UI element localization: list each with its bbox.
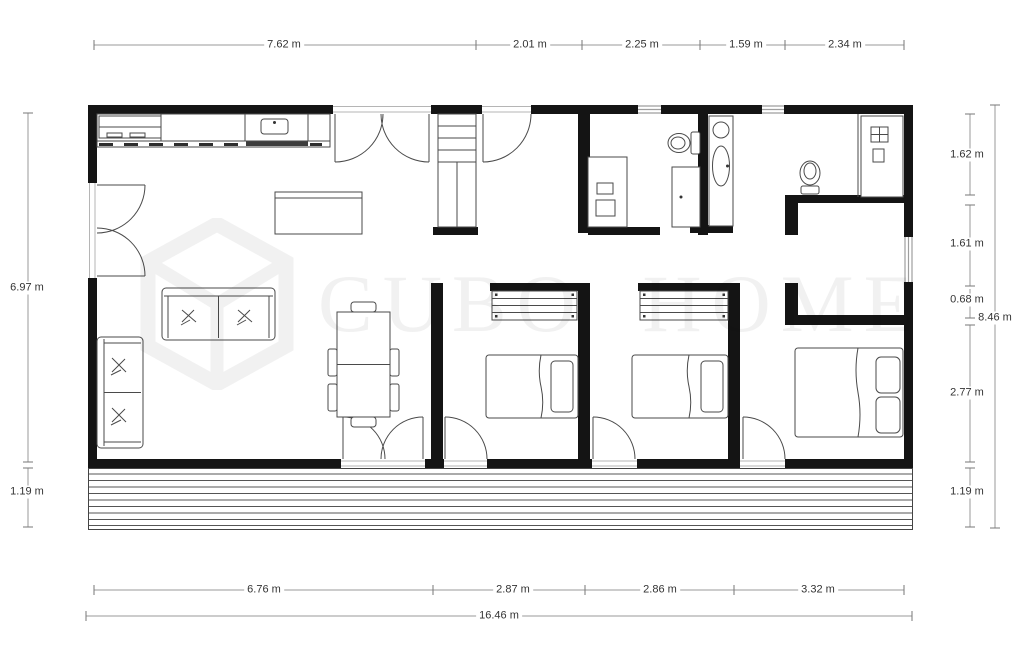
dim-bottom-2: 2.87 m — [493, 584, 533, 597]
dim-right-5: 1.19 m — [947, 486, 987, 499]
dim-right-3: 0.68 m — [947, 294, 987, 307]
dim-bottom-1: 6.76 m — [244, 584, 284, 597]
kitchen-island — [275, 192, 362, 234]
dim-total-width: 16.46 m — [476, 610, 522, 623]
dim-top-3: 2.25 m — [622, 39, 662, 52]
sofa-large — [162, 288, 275, 340]
dim-bottom-3: 2.86 m — [640, 584, 680, 597]
dining-table-set — [328, 302, 399, 427]
sofa-small — [97, 337, 143, 448]
bedroom-2-furniture — [632, 291, 728, 418]
dim-top-1: 7.62 m — [264, 39, 304, 52]
dim-top-4: 1.59 m — [726, 39, 766, 52]
dim-left-1: 6.97 m — [7, 282, 47, 295]
dim-total-height: 8.46 m — [975, 312, 1015, 325]
dim-left-2: 1.19 m — [7, 486, 47, 499]
dim-bottom-4: 3.32 m — [798, 584, 838, 597]
bathroom-1 — [588, 132, 700, 227]
kitchen-counter — [97, 114, 330, 147]
dim-right-2: 1.61 m — [947, 238, 987, 251]
dim-top-5: 2.34 m — [825, 39, 865, 52]
floor-plan-sheet: 7.62 m 2.01 m 2.25 m 1.59 m 2.34 m 6.76 … — [0, 0, 1024, 657]
hall-cabinet — [438, 114, 476, 227]
deck-terrace — [89, 469, 913, 530]
bedroom-1-furniture — [486, 291, 578, 418]
master-bedroom-furniture — [795, 348, 903, 437]
bathroom-2 — [709, 114, 903, 226]
dim-right-1: 1.62 m — [947, 149, 987, 162]
dim-right-4: 2.77 m — [947, 387, 987, 400]
dim-top-2: 2.01 m — [510, 39, 550, 52]
floor-plan-drawing — [0, 0, 1024, 657]
